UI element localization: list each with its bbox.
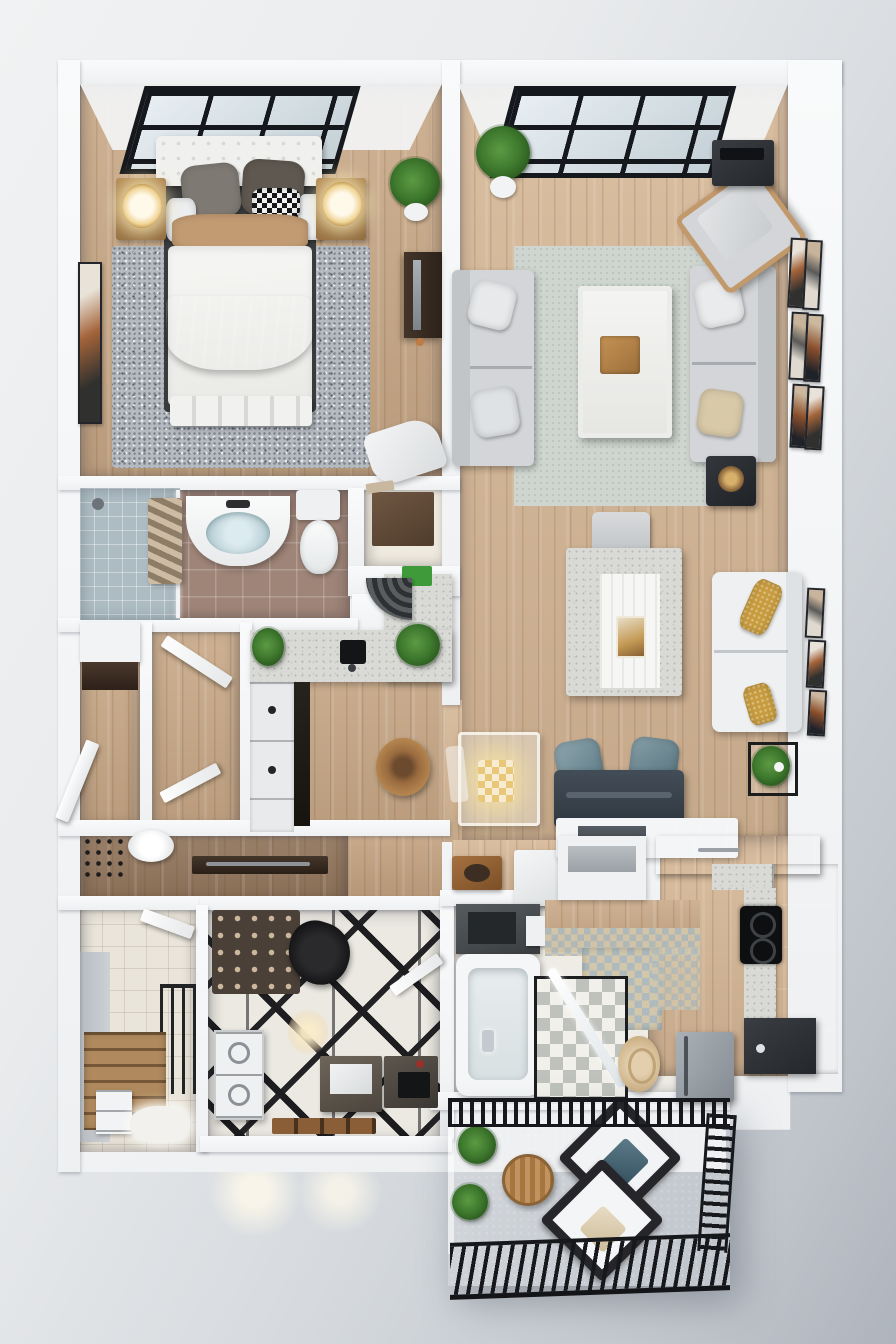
kitchenette-sink [340,640,366,664]
plant-stand-plant [752,746,790,786]
bath2-pouf-ring [628,1048,656,1084]
powder-counter-rail [206,862,310,866]
bed-footboard [170,396,312,426]
balcony-plant-2 [452,1184,488,1220]
bedroom-wall-art [78,262,102,424]
study-frame-2 [806,640,826,689]
wicker-stool [376,738,430,796]
entry-fluffy-rug [130,1106,190,1142]
navy-bench-cushion-line [566,792,672,798]
nook-dark-gap [82,662,138,690]
coffee-table-tray [600,336,640,374]
wall-laundry-north [200,896,452,910]
cooktop-burner-2 [750,938,776,964]
kitchen-island-dot [756,1044,765,1053]
kitchenette-dark-strip [294,682,310,826]
stair-drawers [96,1090,132,1134]
wall-bath1-closet [348,488,364,570]
nook-counter [80,622,140,662]
cooktop-burner-1 [750,912,776,938]
kitchenette-cabinet-fronts [250,682,294,832]
desk-tray [616,616,646,658]
toilet-1-bowl [300,520,338,574]
audio-unit [712,140,774,186]
sofa-left-pillow-2 [468,384,522,439]
kitchenette-faucet [348,664,356,672]
bath2-vanity-inner [468,912,516,944]
floor-tray-decor [464,864,490,882]
kitchenette-plant-1 [252,628,284,666]
study-frame-3 [807,690,827,737]
side-table-art-circle [718,466,744,492]
bedroom-plant [390,158,440,208]
washer-door-1 [228,1042,250,1064]
sofa-right-seam [692,362,756,365]
kitchen-counter-corner [712,864,774,890]
laundry-counter-mat [398,1072,430,1098]
laundry-wood-shelf [272,1118,376,1134]
wall-entry-north [58,896,208,910]
wall-laundry-south [200,1136,452,1152]
kitchen-island-block [744,1018,816,1074]
bathtub-faucet [482,1030,494,1052]
gallery-frame-6 [804,386,824,451]
washer-door-2 [228,1084,250,1106]
laundry-rug [212,910,300,994]
gallery-frame-4 [803,314,824,383]
vanity-1-faucet [226,500,250,508]
dining-pendant-light [478,760,514,802]
bedroom-tv [413,260,421,330]
sofa-right-back [758,266,776,462]
kitchenette-cabinet-knob-2 [268,766,276,774]
kitchenette-plant-2 [396,624,440,666]
balcony-table [502,1154,554,1206]
bathtub-inner [468,968,528,1080]
laundry-vanity-mirror [330,1064,372,1094]
wall-left [58,60,80,1172]
bath2-cabinet-shelf [568,846,636,872]
white-sofa-back [786,572,802,732]
kitchen-tile-patch [652,948,700,1010]
wall-entry-laundry [196,905,208,1152]
study-frame-1 [805,588,826,639]
laundry-counter-dot [416,1060,424,1068]
laundry-ceiling-glow [288,1008,328,1056]
wall-hall-left [140,622,152,832]
powder-shelf [82,836,124,878]
white-sofa-seam [714,650,788,653]
sofa-right-pillow-2 [695,387,745,439]
kitchen-cabinet-handle [698,848,740,852]
bedroom-tv-decor-dot [416,338,424,346]
balcony-plant-1 [458,1126,496,1164]
balcony-railing-bottom [450,1233,730,1300]
vanity-1-basin [206,512,270,554]
audio-unit-detail [720,148,764,160]
sofa-left-seam [470,366,532,369]
refrigerator-handle [684,1036,688,1096]
bedroom-tv-console [404,252,442,338]
toilet-1-tank [296,490,340,520]
lamp-right [322,182,362,226]
plant-stand-flower [774,762,784,772]
closet-mat [372,492,434,546]
bed-throw-blanket [166,296,314,370]
living-plant-pot [490,176,516,198]
shower-curtain [148,498,182,584]
lamp-left [122,184,162,228]
living-plant [476,126,530,180]
floor-plan-scene [0,0,896,1344]
sofa-left-back [452,270,470,466]
shower-1-head [92,498,104,510]
kitchenette-cabinet-knob-1 [268,706,276,714]
powder-toilet [128,830,174,862]
balcony-railing-top [448,1098,730,1127]
bedroom-plant-pot [404,203,428,221]
